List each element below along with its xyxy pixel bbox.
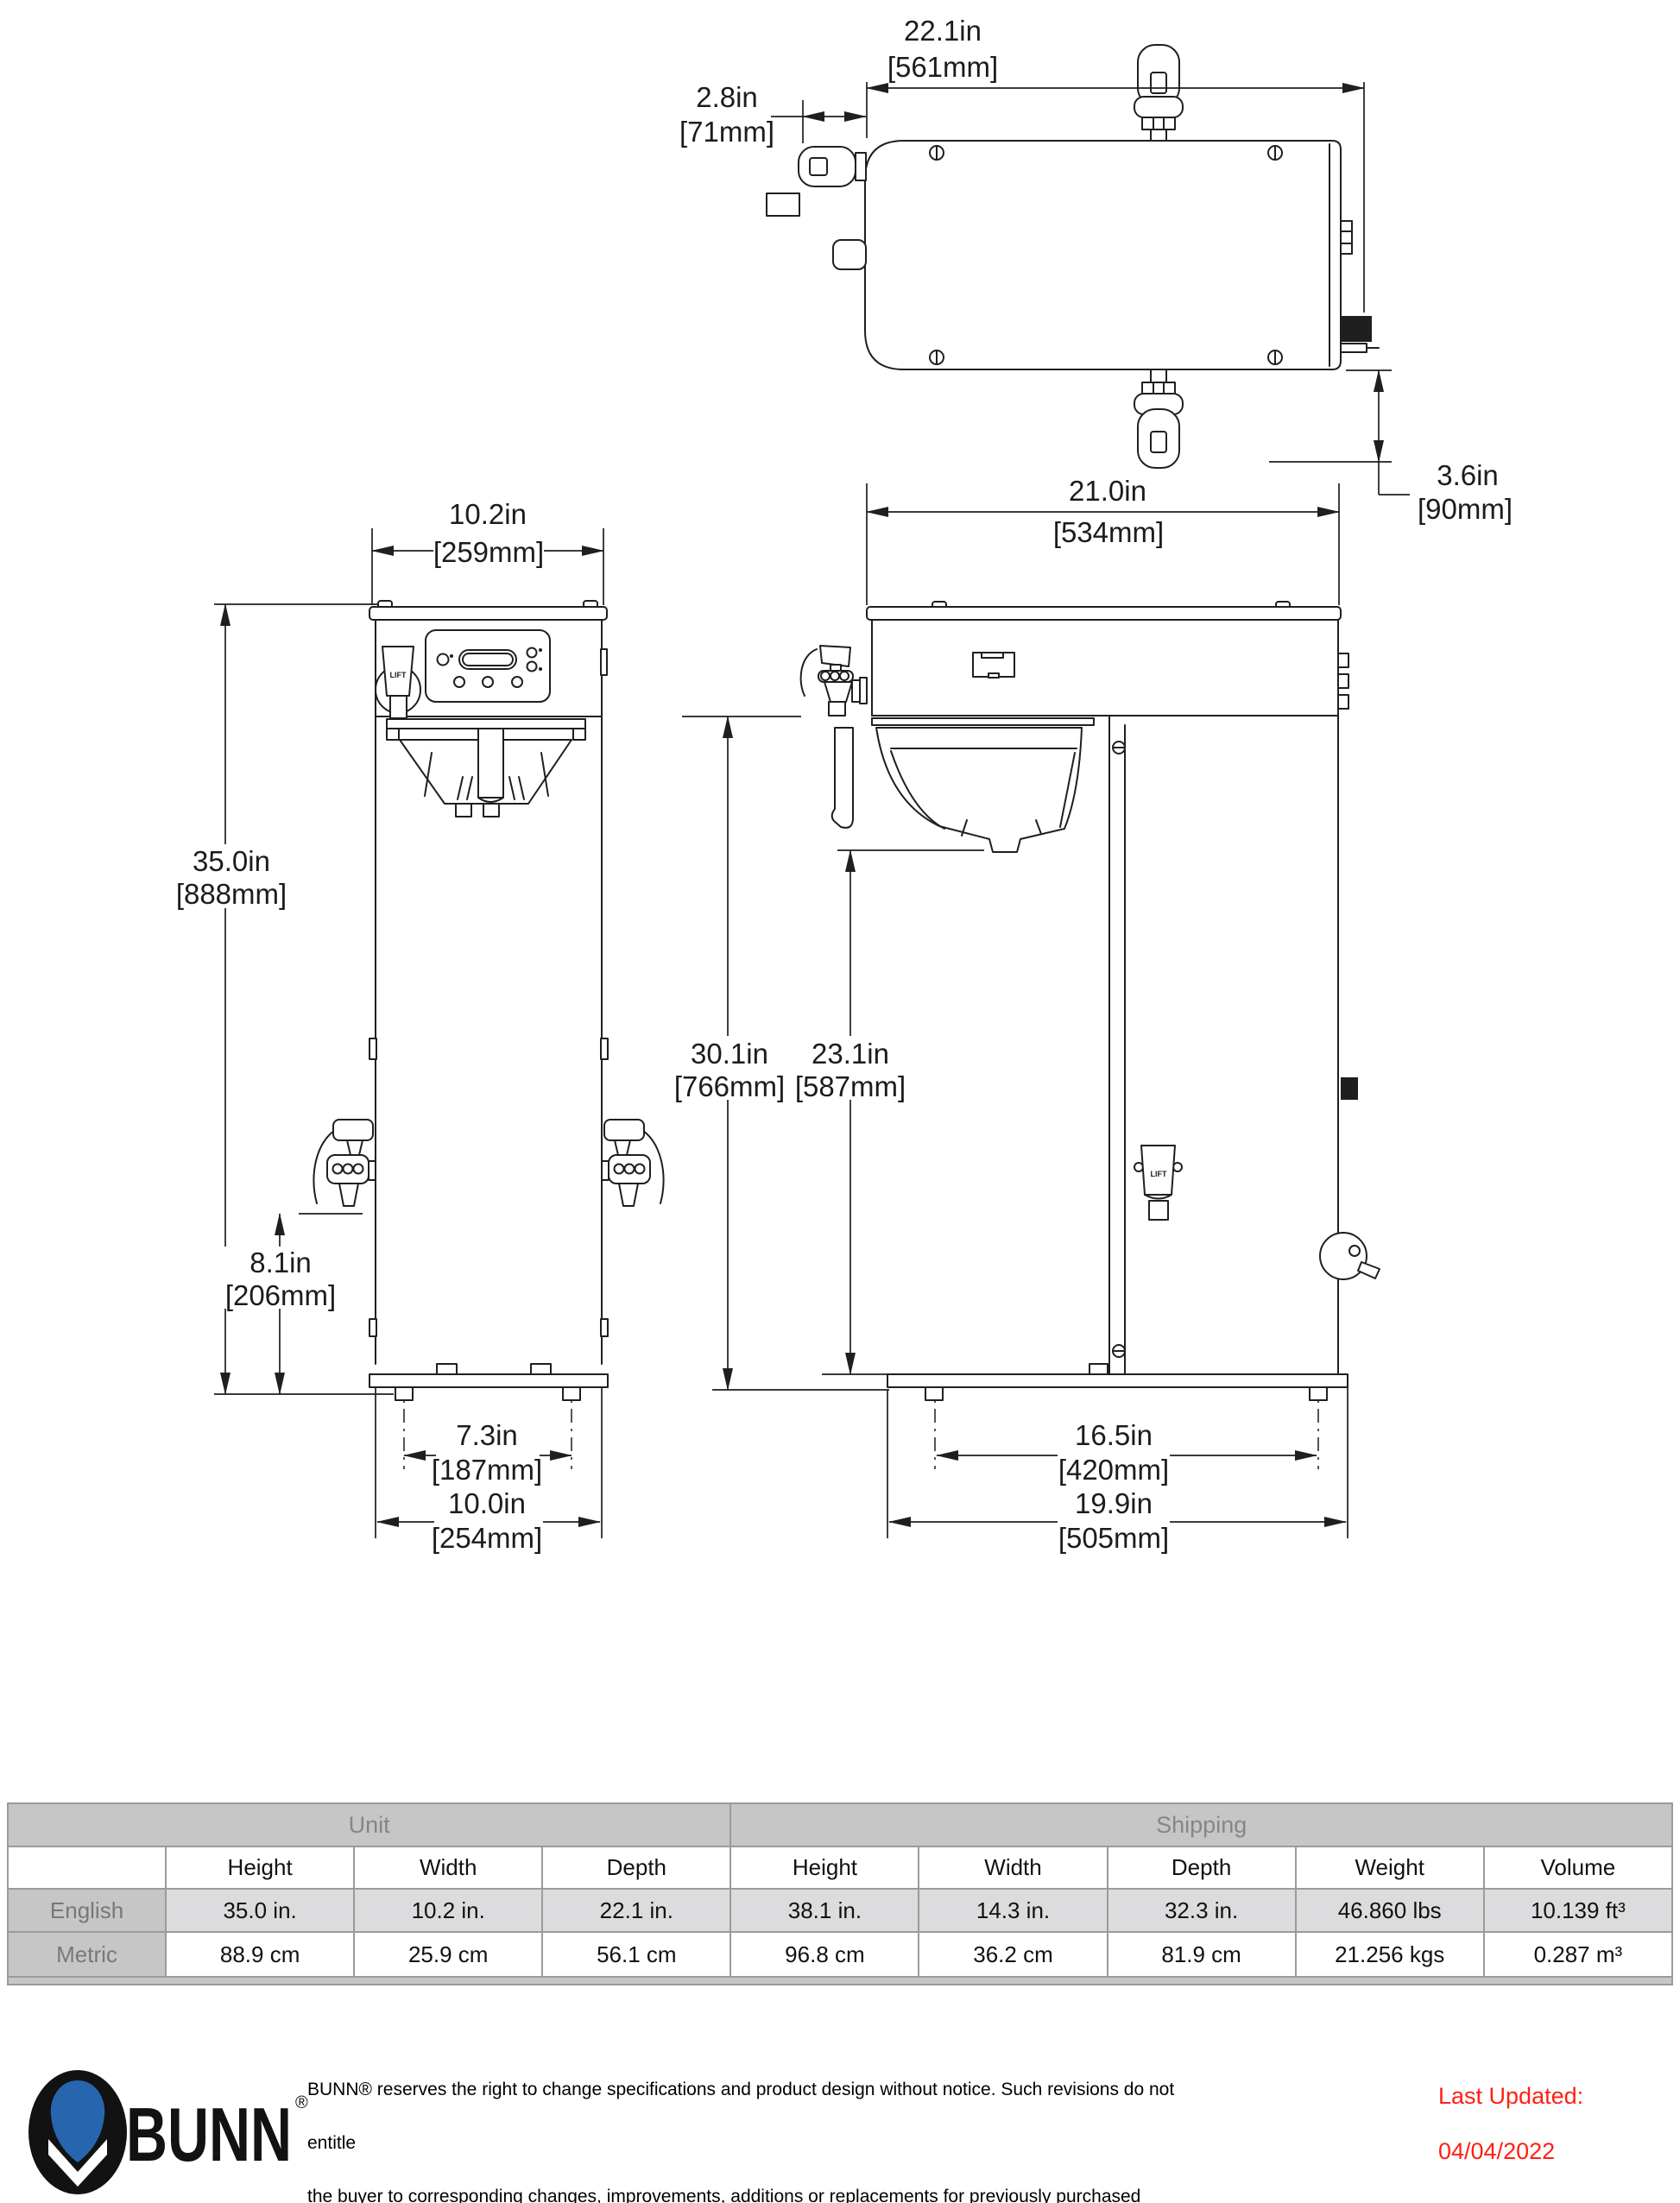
dim-label: 23.1in	[812, 1038, 889, 1070]
last-updated-date: 04/04/2022	[1438, 2124, 1583, 2179]
plan-body	[865, 141, 1341, 369]
last-updated-label: Last Updated:	[1438, 2068, 1583, 2124]
plan-rear-faucet-icon	[767, 147, 866, 216]
table-column-header-row: Height Width Depth Height Width Depth We…	[8, 1846, 1672, 1889]
cell-ship-height: 96.8 cm	[730, 1932, 919, 1977]
dim-label: 7.3in	[456, 1419, 518, 1451]
row-label: Metric	[8, 1932, 166, 1977]
front-lower-left-faucet-icon	[313, 1120, 376, 1206]
col-header: Width	[919, 1846, 1107, 1889]
col-header: Depth	[1108, 1846, 1296, 1889]
row-label: English	[8, 1889, 166, 1932]
front-lower-right-faucet-icon	[602, 1120, 664, 1206]
front-control-panel	[426, 630, 550, 702]
corner-cell	[8, 1846, 166, 1889]
col-header: Height	[730, 1846, 919, 1889]
panel-button	[527, 662, 537, 672]
table-bottom-strip	[8, 1977, 1672, 1985]
dim-label: [90mm]	[1418, 493, 1513, 525]
dim-label: [187mm]	[432, 1454, 542, 1486]
dim-label: [534mm]	[1053, 516, 1164, 548]
dim-label: 2.8in	[696, 81, 758, 113]
dim-label: [766mm]	[674, 1070, 785, 1102]
dim-label: 30.1in	[691, 1038, 768, 1070]
dim-label: [259mm]	[433, 536, 544, 568]
table-row-metric: Metric 88.9 cm 25.9 cm 56.1 cm 96.8 cm 3…	[8, 1932, 1672, 1977]
table-row-english: English 35.0 in. 10.2 in. 22.1 in. 38.1 …	[8, 1889, 1672, 1932]
spec-sheet-page: 22.1in [561mm] 2.8in [71mm] 3.6in [90mm]	[0, 0, 1680, 2203]
front-base	[369, 1364, 608, 1400]
panel-button	[454, 677, 464, 687]
dim-label: [561mm]	[887, 51, 998, 83]
dim-label: 21.0in	[1069, 475, 1146, 507]
cell-ship-width: 36.2 cm	[919, 1932, 1107, 1977]
side-tower-faucet-icon: LIFT	[1134, 1146, 1182, 1220]
plan-side-bump	[833, 240, 866, 269]
dim-front-width: 10.2in [259mm]	[372, 498, 603, 605]
dim-label: 19.9in	[1075, 1487, 1153, 1519]
dim-label: 8.1in	[249, 1247, 312, 1278]
front-funnel	[387, 719, 585, 817]
dim-label: 3.6in	[1437, 459, 1499, 491]
front-lid	[369, 607, 607, 620]
dim-side-depth: 21.0in [534mm]	[867, 475, 1339, 605]
dim-label: [587mm]	[795, 1070, 906, 1102]
faucet-lift-label: LIFT	[390, 671, 407, 679]
col-header: Depth	[542, 1846, 730, 1889]
cell-ship-volume: 0.287 m³	[1484, 1932, 1672, 1977]
dim-label: 16.5in	[1075, 1419, 1153, 1451]
dim-plan-faucet-offset: 2.8in [71mm]	[679, 81, 866, 148]
cell-unit-depth: 22.1 in.	[542, 1889, 730, 1932]
dim-front-faucet-height: 8.1in [206mm]	[221, 1214, 363, 1394]
dim-label: [206mm]	[225, 1279, 336, 1311]
panel-button	[438, 654, 449, 666]
cell-ship-weight: 21.256 kgs	[1296, 1932, 1484, 1977]
panel-button	[512, 677, 522, 687]
cell-unit-width: 10.2 in.	[354, 1889, 542, 1932]
group-header-unit: Unit	[8, 1803, 730, 1846]
dim-label: 10.0in	[448, 1487, 526, 1519]
logo-wordmark: BUNN	[126, 2092, 292, 2177]
dim-label: [420mm]	[1058, 1454, 1169, 1486]
dim-label: [505mm]	[1058, 1522, 1169, 1554]
dim-side-funnel-clearance: 23.1in [587mm]	[791, 850, 984, 1374]
bunn-logo: BUNN ®	[24, 2060, 309, 2202]
col-header: Height	[166, 1846, 354, 1889]
front-upper-faucet-icon: LIFT	[376, 647, 420, 725]
front-view-drawing: LIFT	[171, 498, 664, 1554]
disclaimer-text: BUNN® reserves the right to change speci…	[307, 2063, 1197, 2203]
cell-unit-height: 88.9 cm	[166, 1932, 354, 1977]
spec-table: Unit Shipping Height Width Depth Height …	[7, 1802, 1673, 1985]
cell-unit-depth: 56.1 cm	[542, 1932, 730, 1977]
last-updated: Last Updated: 04/04/2022	[1438, 2068, 1583, 2179]
plan-right-edge-details	[1341, 221, 1379, 352]
faucet-lift-label: LIFT	[1151, 1170, 1167, 1178]
dim-label: [888mm]	[176, 878, 287, 910]
cell-ship-depth: 32.3 in.	[1108, 1889, 1296, 1932]
cell-ship-volume: 10.139 ft³	[1484, 1889, 1672, 1932]
cell-ship-width: 14.3 in.	[919, 1889, 1107, 1932]
dim-side-body-clearance: 30.1in [766mm]	[672, 716, 801, 1390]
side-view-drawing: LIFT 21.0in [534mm]	[672, 475, 1380, 1554]
col-header: Width	[354, 1846, 542, 1889]
plan-bottom-faucet-icon	[1134, 369, 1183, 468]
panel-button	[483, 677, 493, 687]
dim-plan-rear-clearance: 3.6in [90mm]	[1269, 370, 1513, 525]
cell-ship-height: 38.1 in.	[730, 1889, 919, 1932]
side-base	[887, 1364, 1348, 1400]
disclaimer-line: the buyer to corresponding changes, impr…	[307, 2170, 1197, 2203]
dim-label: 35.0in	[193, 845, 270, 877]
col-header: Weight	[1296, 1846, 1484, 1889]
plan-top-faucet-icon	[1134, 45, 1183, 141]
disclaimer-line: BUNN® reserves the right to change speci…	[307, 2063, 1197, 2170]
side-lid	[867, 607, 1341, 620]
logo-reg-mark: ®	[295, 2093, 308, 2112]
side-right-edge-details	[1320, 653, 1380, 1279]
cell-unit-width: 25.9 cm	[354, 1932, 542, 1977]
side-funnel	[832, 718, 1094, 852]
side-card-slot	[973, 653, 1014, 678]
dim-label: [254mm]	[432, 1522, 542, 1554]
dim-label: 10.2in	[449, 498, 527, 530]
group-header-shipping: Shipping	[730, 1803, 1672, 1846]
cell-unit-height: 35.0 in.	[166, 1889, 354, 1932]
cell-ship-depth: 81.9 cm	[1108, 1932, 1296, 1977]
cell-ship-weight: 46.860 lbs	[1296, 1889, 1484, 1932]
dim-side-feet-spacing: 16.5in [420mm]	[935, 1400, 1318, 1486]
side-front-faucet-icon	[801, 646, 867, 716]
dim-front-feet-spacing: 7.3in [187mm]	[404, 1400, 572, 1486]
dim-label: [71mm]	[679, 116, 774, 148]
table-group-header-row: Unit Shipping	[8, 1803, 1672, 1846]
panel-button	[527, 648, 537, 658]
footer: BUNN ® BUNN® reserves the right to chang…	[0, 2055, 1680, 2203]
dim-label: 22.1in	[904, 15, 982, 47]
col-header: Volume	[1484, 1846, 1672, 1889]
plan-view-drawing: 22.1in [561mm] 2.8in [71mm] 3.6in [90mm]	[679, 15, 1513, 525]
dimension-drawings: 22.1in [561mm] 2.8in [71mm] 3.6in [90mm]	[0, 0, 1680, 1796]
